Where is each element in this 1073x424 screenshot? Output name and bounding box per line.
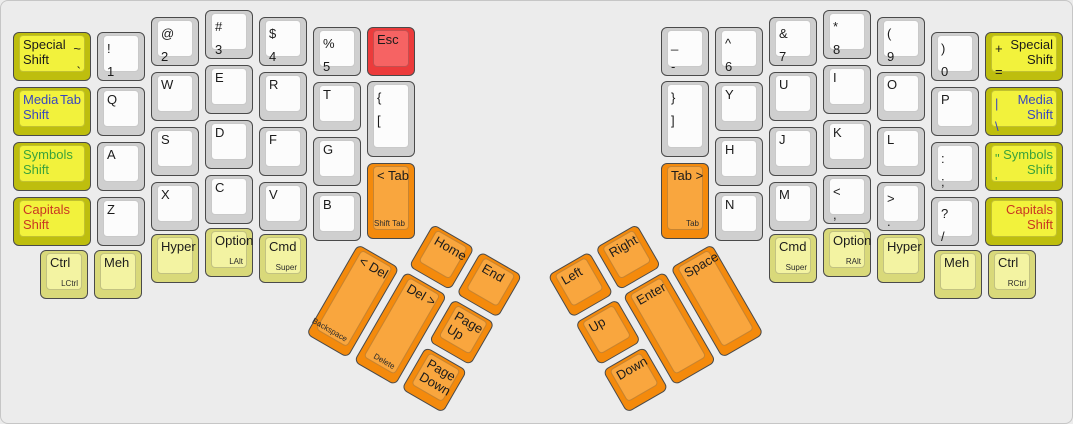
key-letter-w[interactable]: W — [151, 72, 199, 121]
key-front-legend: RCtrl — [1008, 279, 1026, 288]
key-front-legend: Tab — [686, 219, 699, 228]
key-comma[interactable]: <, — [823, 175, 871, 224]
key-legend-line: 7 — [779, 45, 788, 68]
keytop: Home — [418, 229, 468, 279]
keytop: Esc — [373, 30, 409, 67]
key-legend-line: J — [779, 132, 786, 147]
key-legend: V — [269, 187, 278, 202]
key-legend-line: L — [887, 132, 894, 147]
key-capitals-shift-left[interactable]: CapitalsShift — [13, 197, 91, 246]
key-legend-line: / — [941, 225, 948, 248]
key-legend: Right — [606, 232, 640, 260]
key-legend: Home — [432, 233, 470, 263]
keytop: $4 — [265, 20, 301, 57]
key-legend: T — [323, 87, 331, 102]
key-legend-line: End — [479, 261, 507, 286]
key-legend: _- — [671, 32, 678, 78]
keytop: Left — [554, 257, 604, 307]
key-capitals-shift-right[interactable]: CapitalsShift — [985, 197, 1063, 246]
key-legend: Cmd — [269, 239, 296, 254]
key-letter-h[interactable]: H — [715, 137, 763, 186]
keytop: CtrlLCtrl — [46, 253, 82, 290]
key-legend-line: Tab — [60, 92, 81, 107]
key-legend-line: E — [215, 70, 224, 85]
keytop: G — [319, 140, 355, 177]
key-legend-line: S — [161, 132, 170, 147]
key-front-legend: Shift Tab — [374, 219, 405, 228]
key-legend-line: [ — [377, 109, 381, 132]
key-tab[interactable]: Tab >Tab — [661, 163, 709, 239]
keytop: Y — [721, 85, 757, 122]
key-legend-line: Media — [1018, 92, 1053, 107]
key-hyper-right[interactable]: Hyper — [877, 234, 925, 283]
key-legend: Hyper — [161, 239, 196, 254]
key-letter-b[interactable]: B — [313, 192, 361, 241]
keytop: Down — [609, 352, 659, 402]
keytop: M — [775, 185, 811, 222]
key-legend-line: Down — [614, 353, 650, 383]
key-legend: U — [779, 77, 788, 92]
key-legend-line: Tab > — [671, 168, 703, 183]
key-legend: M — [779, 187, 790, 202]
key-front-legend: Delete — [372, 352, 397, 371]
keytop: Tab >Tab — [667, 166, 703, 230]
key-legend: *8 — [833, 15, 840, 61]
key-legend: &7 — [779, 22, 788, 68]
key-special-shift-right[interactable]: +=SpecialShift — [985, 32, 1063, 81]
key-legend: %5 — [323, 32, 335, 78]
key-legend-line: Shift — [1003, 162, 1053, 177]
key-bracket-open[interactable]: {[ — [367, 81, 415, 157]
key-legend-line: T — [323, 87, 331, 102]
key-legend-line: Option — [833, 233, 871, 248]
key-legend-line: _ — [671, 32, 678, 55]
key-legend: MediaShift — [1018, 92, 1053, 122]
keytop: CmdSuper — [775, 237, 811, 274]
key-media-shift-right[interactable]: |\MediaShift — [985, 87, 1063, 136]
key-legend: R — [269, 77, 278, 92]
key-legend-line: I — [833, 70, 837, 85]
key-legend-line: V — [269, 187, 278, 202]
key-legend: Enter — [634, 279, 668, 308]
keytop: K — [829, 123, 865, 160]
key-num-1[interactable]: !1 — [97, 32, 145, 81]
key-legend: B — [323, 197, 332, 212]
key-letter-k[interactable]: K — [823, 120, 871, 169]
key-legend: Up — [586, 314, 608, 335]
key-legend-line: # — [215, 15, 222, 38]
key-legend: Ctrl — [50, 255, 70, 270]
key-legend-line: D — [215, 125, 224, 140]
keytop: I — [829, 68, 865, 105]
key-legend-line: H — [725, 142, 734, 157]
key-letter-t[interactable]: T — [313, 82, 361, 131]
key-num-3[interactable]: #3 — [205, 10, 253, 59]
key-front-legend: Super — [276, 263, 297, 272]
key-letter-v[interactable]: V — [259, 182, 307, 231]
key-legend-line: 6 — [725, 55, 732, 78]
keytop: Hyper — [883, 237, 919, 274]
key-legend: W — [161, 77, 173, 92]
key-legend-line: . — [887, 210, 895, 233]
key-legend: ~` — [73, 37, 81, 83]
key-legend-line: Capitals — [1006, 202, 1053, 217]
keytop: CmdSuper — [265, 237, 301, 274]
key-letter-q[interactable]: Q — [97, 87, 145, 136]
keytop: }] — [667, 84, 703, 148]
key-legend: I — [833, 70, 837, 85]
key-legend-line: Del > — [404, 281, 438, 309]
keytop: N — [721, 195, 757, 232]
key-legend-line: Option — [215, 233, 253, 248]
key-legend: Option — [215, 233, 253, 248]
key-shift-tab[interactable]: < TabShift Tab — [367, 163, 415, 239]
key-front-legend: Backspace — [311, 316, 349, 343]
key-legend-line: , — [833, 203, 841, 226]
keytop: H — [721, 140, 757, 177]
key-legend-line: 2 — [161, 45, 174, 68]
key-legend: A — [107, 147, 116, 162]
key-hyper-left[interactable]: Hyper — [151, 234, 199, 283]
key-legend-line: Shift — [23, 217, 70, 232]
key-legend-line: F — [269, 132, 277, 147]
keytop: P — [937, 90, 973, 127]
keytop: E — [211, 68, 247, 105]
key-letter-d[interactable]: D — [205, 120, 253, 169]
key-legend: Meh — [944, 255, 969, 270]
key-legend: C — [215, 180, 224, 195]
key-legend: E — [215, 70, 224, 85]
keytop: "'SymbolsShift — [991, 145, 1057, 182]
key-legend-line: Shift — [23, 162, 73, 177]
key-legend-line: \ — [995, 115, 999, 138]
key-legend-line: P — [941, 92, 950, 107]
key-legend: :; — [941, 147, 945, 193]
keytop: Hyper — [157, 237, 193, 274]
key-legend-line: Shift — [1018, 107, 1053, 122]
key-front-legend: LAlt — [229, 257, 243, 266]
key-letter-z[interactable]: Z — [97, 197, 145, 246]
keytop: MediaShiftTab — [19, 90, 85, 127]
key-legend-line: & — [779, 22, 788, 45]
key-legend: "' — [995, 147, 1000, 193]
key-legend: <, — [833, 180, 841, 226]
key-legend: L — [887, 132, 894, 147]
key-legend: |\ — [995, 92, 999, 138]
key-legend-line: ; — [941, 170, 945, 193]
key-legend: G — [323, 142, 333, 157]
keytop: End — [466, 257, 516, 307]
keytop: Meh — [100, 253, 136, 290]
key-legend: < Del — [357, 253, 391, 281]
key-legend: Y — [725, 87, 734, 102]
key-legend: X — [161, 187, 170, 202]
key-legend: PageDown — [417, 356, 461, 399]
key-legend-line: - — [671, 55, 678, 78]
key-legend-line: X — [161, 187, 170, 202]
key-legend: < Tab — [377, 168, 409, 183]
keytop: R — [265, 75, 301, 112]
key-legend-line: Meh — [104, 255, 129, 270]
key-legend: Space — [681, 249, 720, 280]
key-semicolon[interactable]: :; — [931, 142, 979, 191]
keytop: |\MediaShift — [991, 90, 1057, 127]
key-legend-line: 0 — [941, 60, 948, 83]
key-ctrl-right[interactable]: CtrlRCtrl — [988, 250, 1036, 299]
key-legend-line: Shift — [1006, 217, 1053, 232]
key-legend-line: Special — [23, 37, 66, 52]
key-cmd-left[interactable]: CmdSuper — [259, 234, 307, 283]
key-legend-line: > — [887, 187, 895, 210]
keytop: @2 — [157, 20, 193, 57]
key-legend: ^6 — [725, 32, 732, 78]
key-legend: >. — [887, 187, 895, 233]
key-legend: {[ — [377, 86, 381, 132]
key-legend: CapitalsShift — [23, 202, 70, 232]
key-letter-p[interactable]: P — [931, 87, 979, 136]
key-legend-line: C — [215, 180, 224, 195]
key-legend-line: " — [995, 147, 1000, 170]
key-legend-line: Ctrl — [50, 255, 70, 270]
key-legend-line: < Del — [357, 253, 391, 281]
key-minus[interactable]: _- — [661, 27, 709, 76]
key-letter-u[interactable]: U — [769, 72, 817, 121]
keytop: %5 — [319, 30, 355, 67]
keytop: Z — [103, 200, 139, 237]
key-media-shift-left[interactable]: MediaShiftTab — [13, 87, 91, 136]
key-bracket-close[interactable]: }] — [661, 81, 709, 157]
key-legend-line: Home — [432, 233, 470, 263]
key-legend-line: Symbols — [1003, 147, 1053, 162]
key-letter-a[interactable]: A — [97, 142, 145, 191]
key-symbols-shift-right[interactable]: "'SymbolsShift — [985, 142, 1063, 191]
key-legend: Q — [107, 92, 117, 107]
key-ctrl-left[interactable]: CtrlLCtrl — [40, 250, 88, 299]
key-legend-line: Up — [586, 314, 608, 335]
key-option-right[interactable]: OptionRAlt — [823, 228, 871, 277]
key-legend-line: Meh — [944, 255, 969, 270]
key-letter-f[interactable]: F — [259, 127, 307, 176]
key-num-9[interactable]: (9 — [877, 17, 925, 66]
key-legend: Tab > — [671, 168, 703, 183]
key-period[interactable]: >. — [877, 182, 925, 231]
key-legend: H — [725, 142, 734, 157]
key-legend: PageUp — [444, 308, 485, 349]
key-num-5[interactable]: %5 — [313, 27, 361, 76]
key-legend: (9 — [887, 22, 894, 68]
keytop: !1 — [103, 35, 139, 72]
key-slash[interactable]: ?/ — [931, 197, 979, 246]
key-legend: S — [161, 132, 170, 147]
key-legend-line: | — [995, 92, 999, 115]
key-legend-line: Right — [606, 232, 640, 260]
key-letter-c[interactable]: C — [205, 175, 253, 224]
key-legend-line: * — [833, 15, 840, 38]
keytop: U — [775, 75, 811, 112]
key-front-legend: RAlt — [846, 257, 861, 266]
key-legend-line: Shift — [1010, 52, 1053, 67]
key-legend-line: Q — [107, 92, 117, 107]
key-legend-line: M — [779, 187, 790, 202]
key-front-legend: LCtrl — [61, 279, 78, 288]
key-legend: SymbolsShift — [23, 147, 73, 177]
keytop: ?/ — [937, 200, 973, 237]
key-legend-line: B — [323, 197, 332, 212]
key-legend-line: K — [833, 125, 842, 140]
keytop: CapitalsShift — [19, 200, 85, 237]
key-legend: SpecialShift — [23, 37, 66, 67]
keytop: PageDown — [411, 352, 461, 402]
key-legend-line: Media — [23, 92, 58, 107]
keytop: Meh — [940, 253, 976, 290]
key-legend: += — [995, 37, 1003, 83]
keytop: SymbolsShift — [19, 145, 85, 182]
key-letter-e[interactable]: E — [205, 65, 253, 114]
key-legend-line: W — [161, 77, 173, 92]
key-num-0[interactable]: )0 — [931, 32, 979, 81]
key-legend: O — [887, 77, 897, 92]
key-legend-line: ^ — [725, 32, 732, 55]
key-legend: F — [269, 132, 277, 147]
key-legend-line: Shift — [23, 107, 58, 122]
keytop: B — [319, 195, 355, 232]
key-legend-line: { — [377, 86, 381, 109]
keytop: _- — [667, 30, 703, 67]
keytop: Right — [602, 229, 652, 279]
key-num-7[interactable]: &7 — [769, 17, 817, 66]
key-option-left[interactable]: OptionLAlt — [205, 228, 253, 277]
keytop: C — [211, 178, 247, 215]
keytop: S — [157, 130, 193, 167]
keytop: L — [883, 130, 919, 167]
key-legend-line: Ctrl — [998, 255, 1018, 270]
key-legend: SpecialShift — [1010, 37, 1053, 67]
keytop: *8 — [829, 13, 865, 50]
key-legend-line: % — [323, 32, 335, 55]
key-legend-line: ~ — [73, 37, 81, 60]
key-legend: P — [941, 92, 950, 107]
key-letter-n[interactable]: N — [715, 192, 763, 241]
key-legend-line: Cmd — [779, 239, 806, 254]
key-legend-line: ' — [995, 170, 1000, 193]
keytop: D — [211, 123, 247, 160]
key-legend-line: Symbols — [23, 147, 73, 162]
key-num-8[interactable]: *8 — [823, 10, 871, 59]
key-legend: ?/ — [941, 202, 948, 248]
key-legend-line: U — [779, 77, 788, 92]
key-legend: Meh — [104, 255, 129, 270]
key-num-6[interactable]: ^6 — [715, 27, 763, 76]
key-legend-line: ] — [671, 109, 675, 132]
key-letter-i[interactable]: I — [823, 65, 871, 114]
key-legend-line: 1 — [107, 60, 114, 83]
key-letter-g[interactable]: G — [313, 137, 361, 186]
key-letter-y[interactable]: Y — [715, 82, 763, 131]
key-legend-line: ? — [941, 202, 948, 225]
key-num-2[interactable]: @2 — [151, 17, 199, 66]
key-legend-line: R — [269, 77, 278, 92]
key-meh-left[interactable]: Meh — [94, 250, 142, 299]
keytop: SpecialShift~` — [19, 35, 85, 72]
key-legend-line: 4 — [269, 45, 276, 68]
keytop: OptionRAlt — [829, 231, 865, 268]
key-legend-line: < — [833, 180, 841, 203]
key-meh-right[interactable]: Meh — [934, 250, 982, 299]
key-legend-line: ` — [73, 60, 81, 83]
key-letter-r[interactable]: R — [259, 72, 307, 121]
key-legend: K — [833, 125, 842, 140]
keytop: V — [265, 185, 301, 222]
key-letter-m[interactable]: M — [769, 182, 817, 231]
key-legend: $4 — [269, 22, 276, 68]
keytop: Up — [582, 305, 632, 355]
keytop: +=SpecialShift — [991, 35, 1057, 72]
key-legend: )0 — [941, 37, 948, 83]
key-legend-line: 9 — [887, 45, 894, 68]
key-legend: Cmd — [779, 239, 806, 254]
key-num-4[interactable]: $4 — [259, 17, 307, 66]
keytop: < TabShift Tab — [373, 166, 409, 230]
key-legend: #3 — [215, 15, 222, 61]
key-legend: SymbolsShift — [1003, 147, 1053, 177]
key-legend: MediaShift — [23, 92, 58, 122]
key-legend: Z — [107, 202, 115, 217]
key-letter-l[interactable]: L — [877, 127, 925, 176]
key-legend-line: Special — [1010, 37, 1053, 52]
key-esc[interactable]: Esc — [367, 27, 415, 76]
key-legend-line: < Tab — [377, 168, 409, 183]
keytop: X — [157, 185, 193, 222]
keytop: W — [157, 75, 193, 112]
key-legend-line: Enter — [634, 279, 668, 308]
key-legend-line: Capitals — [23, 202, 70, 217]
keytop: ^6 — [721, 30, 757, 67]
keytop: #3 — [211, 13, 247, 50]
key-legend: N — [725, 197, 734, 212]
keytop: :; — [937, 145, 973, 182]
key-legend-line: Cmd — [269, 239, 296, 254]
key-letter-s[interactable]: S — [151, 127, 199, 176]
key-legend: Ctrl — [998, 255, 1018, 270]
key-letter-x[interactable]: X — [151, 182, 199, 231]
key-legend-line: N — [725, 197, 734, 212]
key-legend-line: = — [995, 60, 1003, 83]
keytop: CtrlRCtrl — [994, 253, 1030, 290]
key-legend-line: Space — [681, 249, 720, 280]
key-legend: }] — [671, 86, 675, 132]
key-legend: D — [215, 125, 224, 140]
key-symbols-shift-left[interactable]: SymbolsShift — [13, 142, 91, 191]
key-legend-line: Esc — [377, 32, 399, 47]
key-legend-line: : — [941, 147, 945, 170]
keytop: (9 — [883, 20, 919, 57]
key-legend-line: ( — [887, 22, 894, 45]
keytop: CapitalsShift — [991, 200, 1057, 237]
key-special-shift-left[interactable]: SpecialShift~` — [13, 32, 91, 81]
key-legend: J — [779, 132, 786, 147]
key-cmd-right[interactable]: CmdSuper — [769, 234, 817, 283]
keytop: )0 — [937, 35, 973, 72]
key-legend: CapitalsShift — [1006, 202, 1053, 232]
key-legend-line: Hyper — [161, 239, 196, 254]
key-letter-j[interactable]: J — [769, 127, 817, 176]
keytop: PageUp — [438, 305, 488, 355]
key-legend-line: ! — [107, 37, 114, 60]
key-letter-o[interactable]: O — [877, 72, 925, 121]
key-legend-line: Hyper — [887, 239, 922, 254]
keytop: {[ — [373, 84, 409, 148]
keytop: T — [319, 85, 355, 122]
